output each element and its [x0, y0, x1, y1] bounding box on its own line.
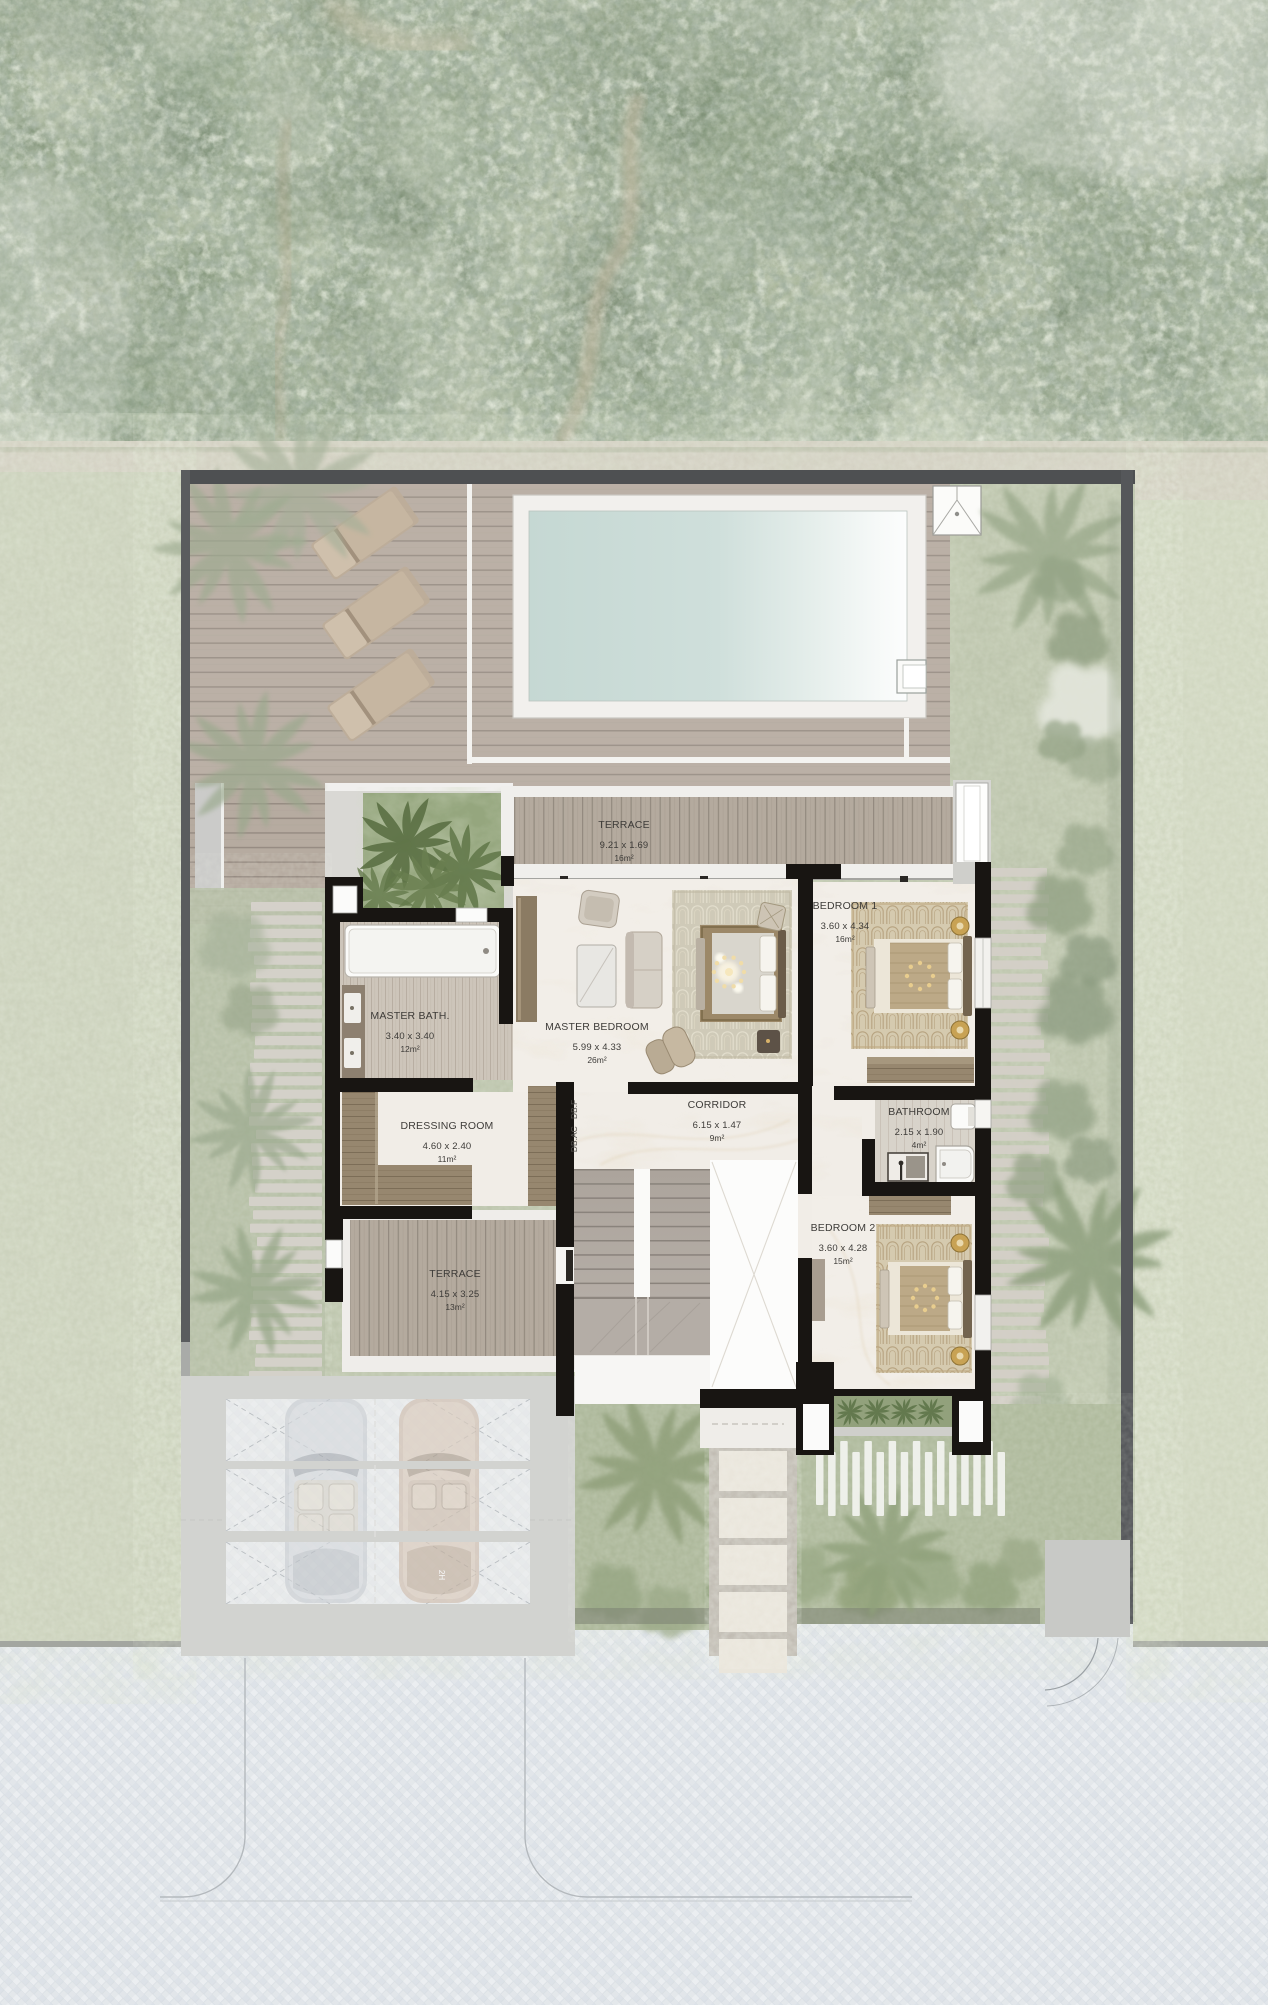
- svg-text:15m²: 15m²: [833, 1256, 853, 1266]
- svg-text:CORRIDOR: CORRIDOR: [688, 1099, 747, 1111]
- svg-text:26m²: 26m²: [587, 1055, 607, 1065]
- svg-text:5.99 x 4.33: 5.99 x 4.33: [573, 1042, 622, 1053]
- svg-text:3.40 x 3.40: 3.40 x 3.40: [386, 1031, 435, 1042]
- svg-text:3.60 x 4.34: 3.60 x 4.34: [821, 921, 870, 932]
- svg-text:11m²: 11m²: [438, 1154, 457, 1164]
- svg-text:16m²: 16m²: [835, 934, 855, 944]
- svg-text:9.21 x 1.69: 9.21 x 1.69: [600, 840, 649, 851]
- svg-text:MASTER BEDROOM: MASTER BEDROOM: [545, 1021, 649, 1033]
- svg-text:9m²: 9m²: [710, 1133, 725, 1143]
- svg-text:BEDROOM 1: BEDROOM 1: [813, 900, 878, 912]
- svg-text:4.60 x 2.40: 4.60 x 2.40: [423, 1141, 472, 1152]
- svg-text:BEDROOM 2: BEDROOM 2: [811, 1222, 876, 1234]
- svg-text:DRESSING ROOM: DRESSING ROOM: [400, 1120, 493, 1132]
- svg-text:DB.AC DB.F: DB.AC DB.F: [569, 1100, 579, 1152]
- svg-text:4.15 x 3.25: 4.15 x 3.25: [431, 1289, 480, 1300]
- svg-text:12m²: 12m²: [400, 1044, 420, 1054]
- svg-text:6.15 x 1.47: 6.15 x 1.47: [693, 1120, 742, 1131]
- svg-text:MASTER BATH.: MASTER BATH.: [370, 1010, 449, 1022]
- svg-text:13m²: 13m²: [445, 1302, 465, 1312]
- svg-text:4m²: 4m²: [912, 1140, 927, 1150]
- svg-text:BATHROOM: BATHROOM: [888, 1106, 950, 1118]
- svg-text:16m²: 16m²: [614, 853, 634, 863]
- svg-text:TERRACE: TERRACE: [598, 819, 650, 831]
- svg-text:3.60 x 4.28: 3.60 x 4.28: [819, 1243, 868, 1254]
- svg-text:2.15 x 1.90: 2.15 x 1.90: [895, 1127, 944, 1138]
- svg-text:TERRACE: TERRACE: [429, 1268, 481, 1280]
